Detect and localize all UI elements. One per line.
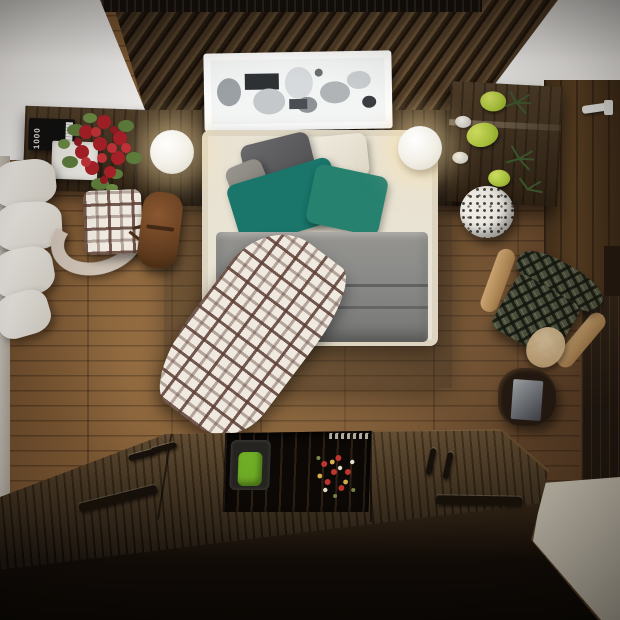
plaid-chair-seat bbox=[83, 189, 143, 255]
ceiling-edge-band bbox=[102, 0, 482, 12]
recessed-nook bbox=[223, 428, 372, 512]
green-chair bbox=[237, 452, 262, 486]
door-handle-plate bbox=[604, 100, 613, 115]
keyboard-dots bbox=[329, 433, 369, 439]
sphere-lamp-right bbox=[398, 126, 442, 170]
dark-mirror-object bbox=[498, 368, 556, 426]
plate bbox=[455, 115, 472, 128]
book-spine-label: 1000 bbox=[30, 119, 45, 149]
small-bouquet bbox=[307, 446, 363, 502]
pillow-teal-square bbox=[305, 163, 390, 237]
plate bbox=[452, 151, 469, 164]
rose-bouquet bbox=[56, 100, 146, 194]
sphere-lamp-left bbox=[150, 130, 194, 174]
display-shelf bbox=[203, 50, 392, 131]
ceramic-stool bbox=[460, 186, 514, 238]
bedroom-topdown-render: 1000 bbox=[0, 0, 620, 620]
right-desk bbox=[445, 81, 563, 207]
mirror-face bbox=[511, 379, 544, 421]
lid-long-handle bbox=[436, 495, 522, 505]
nook-chair-frame bbox=[229, 440, 271, 490]
shelf-decor bbox=[210, 57, 385, 124]
plant-sprigs bbox=[497, 88, 563, 201]
